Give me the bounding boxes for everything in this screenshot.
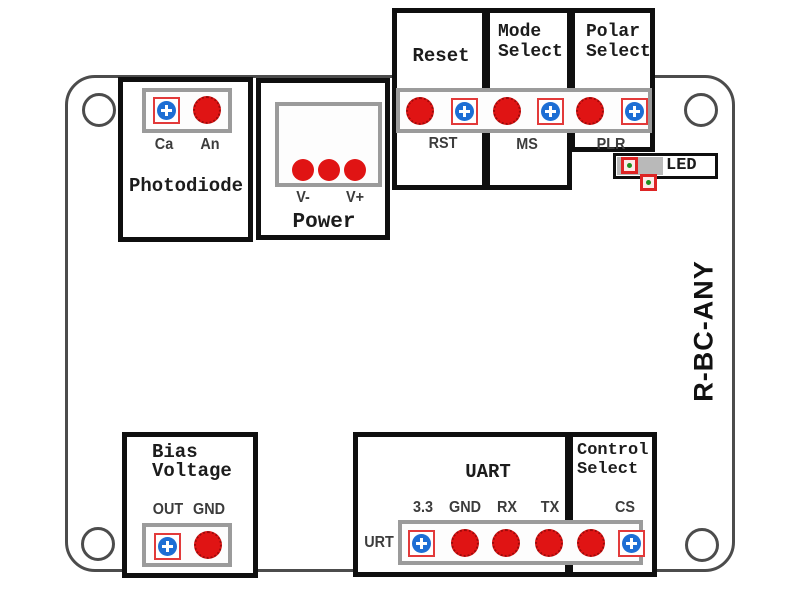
- mounting-hole-bottom-right: [685, 528, 719, 562]
- crosshair-icon: [157, 101, 176, 120]
- mode-select-terminal-red-icon: [493, 97, 521, 125]
- polar-select-title: Polar Select: [586, 22, 651, 62]
- polar-select-terminal-blue-icon: [621, 98, 648, 125]
- uart-tx-terminal-icon: [535, 529, 563, 557]
- power-vminus-label: V-: [296, 189, 310, 207]
- reset-pin-label: RST: [429, 135, 458, 153]
- uart-3v3-terminal-icon: [408, 530, 435, 557]
- reset-terminal-red-icon: [406, 97, 434, 125]
- reset-title: Reset: [412, 45, 469, 67]
- mode-select-title: Mode Select: [498, 22, 563, 62]
- mode-select-terminal-blue-icon: [537, 98, 564, 125]
- control-select-terminal-red-icon: [577, 529, 605, 557]
- led-label: LED: [666, 156, 697, 175]
- uart-connector-label: URT: [364, 534, 394, 552]
- led-indicator-icon: [621, 157, 638, 174]
- reset-terminal-blue-icon: [451, 98, 478, 125]
- uart-pin-rx-label: RX: [497, 499, 517, 517]
- pcb-diagram: Photodiode Power Reset Mode Select Polar…: [0, 0, 800, 600]
- crosshair-icon: [622, 534, 641, 553]
- power-pin-icon: [344, 159, 366, 181]
- photodiode-pin-left-label: Ca: [155, 136, 173, 154]
- power-vplus-label: V+: [346, 189, 364, 207]
- uart-pin-gnd-label: GND: [449, 499, 481, 517]
- uart-rx-terminal-icon: [492, 529, 520, 557]
- control-select-terminal-blue-icon: [618, 530, 645, 557]
- power-pin-icon: [318, 159, 340, 181]
- control-select-pin-label: CS: [615, 499, 635, 517]
- photodiode-cathode-terminal-icon: [153, 97, 180, 124]
- uart-title: UART: [465, 461, 511, 483]
- bias-out-label: OUT: [153, 501, 183, 519]
- power-pin-icon: [292, 159, 314, 181]
- bias-gnd-terminal-icon: [194, 531, 222, 559]
- bias-out-terminal-icon: [154, 533, 181, 560]
- crosshair-icon: [455, 102, 474, 121]
- crosshair-icon: [625, 102, 644, 121]
- bias-voltage-title: Bias Voltage: [152, 443, 232, 481]
- board-model-label: R-BC-ANY: [689, 260, 720, 401]
- photodiode-anode-terminal-icon: [193, 96, 221, 124]
- photodiode-pin-right-label: An: [200, 136, 219, 154]
- control-select-title: Control Select: [577, 441, 648, 479]
- photodiode-title: Photodiode: [129, 175, 243, 197]
- polar-select-pin-label: PLR: [597, 136, 626, 154]
- crosshair-icon: [541, 102, 560, 121]
- mounting-hole-bottom-left: [81, 527, 115, 561]
- crosshair-icon: [158, 537, 177, 556]
- crosshair-icon: [412, 534, 431, 553]
- bias-gnd-label: GND: [193, 501, 225, 519]
- mounting-hole-top-left: [82, 93, 116, 127]
- uart-pin-tx-label: TX: [541, 499, 559, 517]
- power-title: Power: [292, 211, 355, 234]
- mode-select-pin-label: MS: [516, 136, 538, 154]
- mounting-hole-top-right: [684, 93, 718, 127]
- uart-gnd-terminal-icon: [451, 529, 479, 557]
- polar-select-terminal-red-icon: [576, 97, 604, 125]
- top-connector-strip: [396, 88, 652, 133]
- uart-pin-3v3-label: 3.3: [413, 499, 433, 517]
- led-indicator-icon: [640, 174, 657, 191]
